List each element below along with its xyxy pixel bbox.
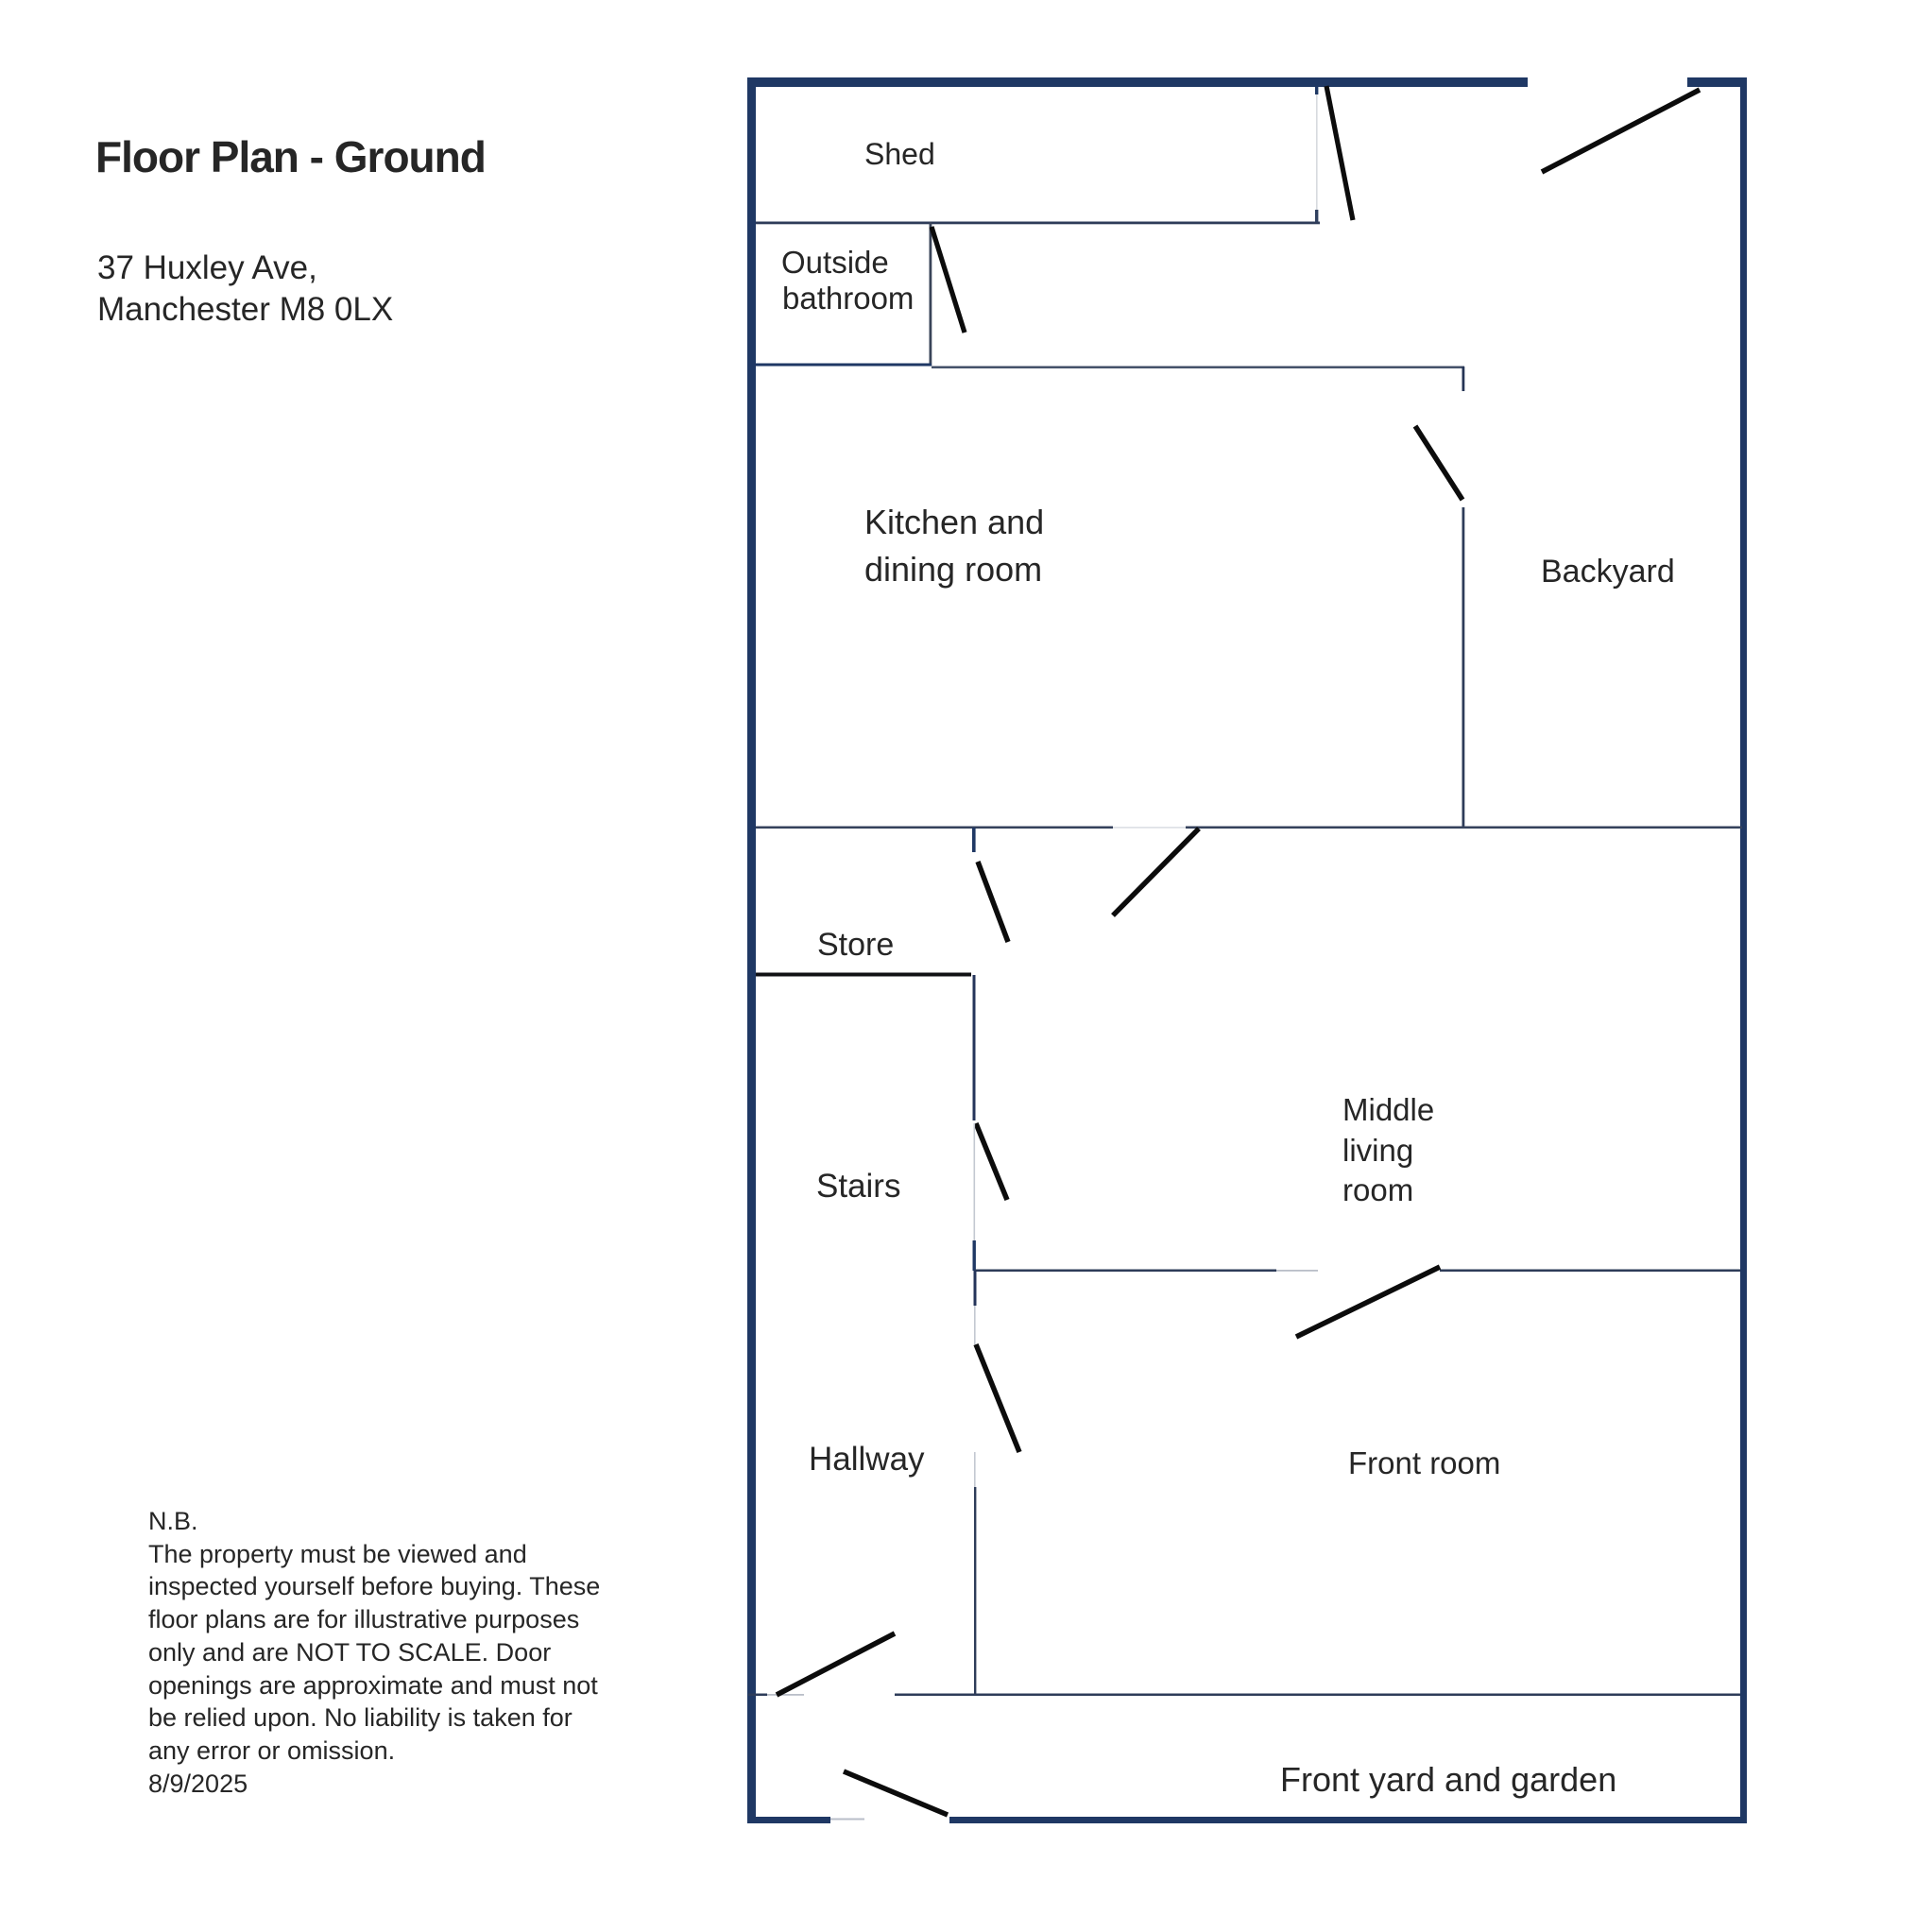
svg-text:inspected yourself before buyi: inspected yourself before buying. These: [148, 1572, 600, 1600]
svg-text:Manchester M8 0LX: Manchester M8 0LX: [97, 291, 393, 328]
svg-text:any error or omission.: any error or omission.: [148, 1736, 395, 1765]
svg-text:dining room: dining room: [864, 550, 1042, 589]
svg-text:Kitchen and: Kitchen and: [864, 503, 1044, 541]
svg-text:Store: Store: [817, 927, 894, 963]
svg-text:Outside: Outside: [781, 245, 889, 280]
svg-text:8/9/2025: 8/9/2025: [148, 1770, 248, 1798]
svg-text:The property must be viewed an: The property must be viewed and: [148, 1540, 527, 1568]
svg-text:Middle: Middle: [1342, 1092, 1434, 1127]
svg-text:openings are approximate and m: openings are approximate and must not: [148, 1671, 598, 1700]
svg-text:be relied upon. No liability i: be relied upon. No liability is taken fo…: [148, 1703, 573, 1732]
svg-text:bathroom: bathroom: [782, 281, 914, 316]
svg-text:37 Huxley Ave,: 37 Huxley Ave,: [97, 249, 317, 286]
svg-text:only and are NOT TO SCALE. Doo: only and are NOT TO SCALE. Door: [148, 1638, 551, 1667]
svg-text:living: living: [1342, 1133, 1413, 1168]
svg-text:floor plans are for illustrati: floor plans are for illustrative purpose…: [148, 1605, 579, 1633]
svg-text:room: room: [1342, 1172, 1413, 1207]
svg-text:Shed: Shed: [864, 137, 935, 171]
svg-text:Hallway: Hallway: [809, 1441, 925, 1478]
svg-text:Floor Plan - Ground: Floor Plan - Ground: [95, 132, 486, 181]
svg-text:Front yard and garden: Front yard and garden: [1280, 1760, 1616, 1799]
svg-text:Front room: Front room: [1348, 1445, 1500, 1480]
svg-text:N.B.: N.B.: [148, 1507, 198, 1535]
svg-text:Backyard: Backyard: [1541, 554, 1675, 590]
svg-text:Stairs: Stairs: [816, 1168, 900, 1205]
